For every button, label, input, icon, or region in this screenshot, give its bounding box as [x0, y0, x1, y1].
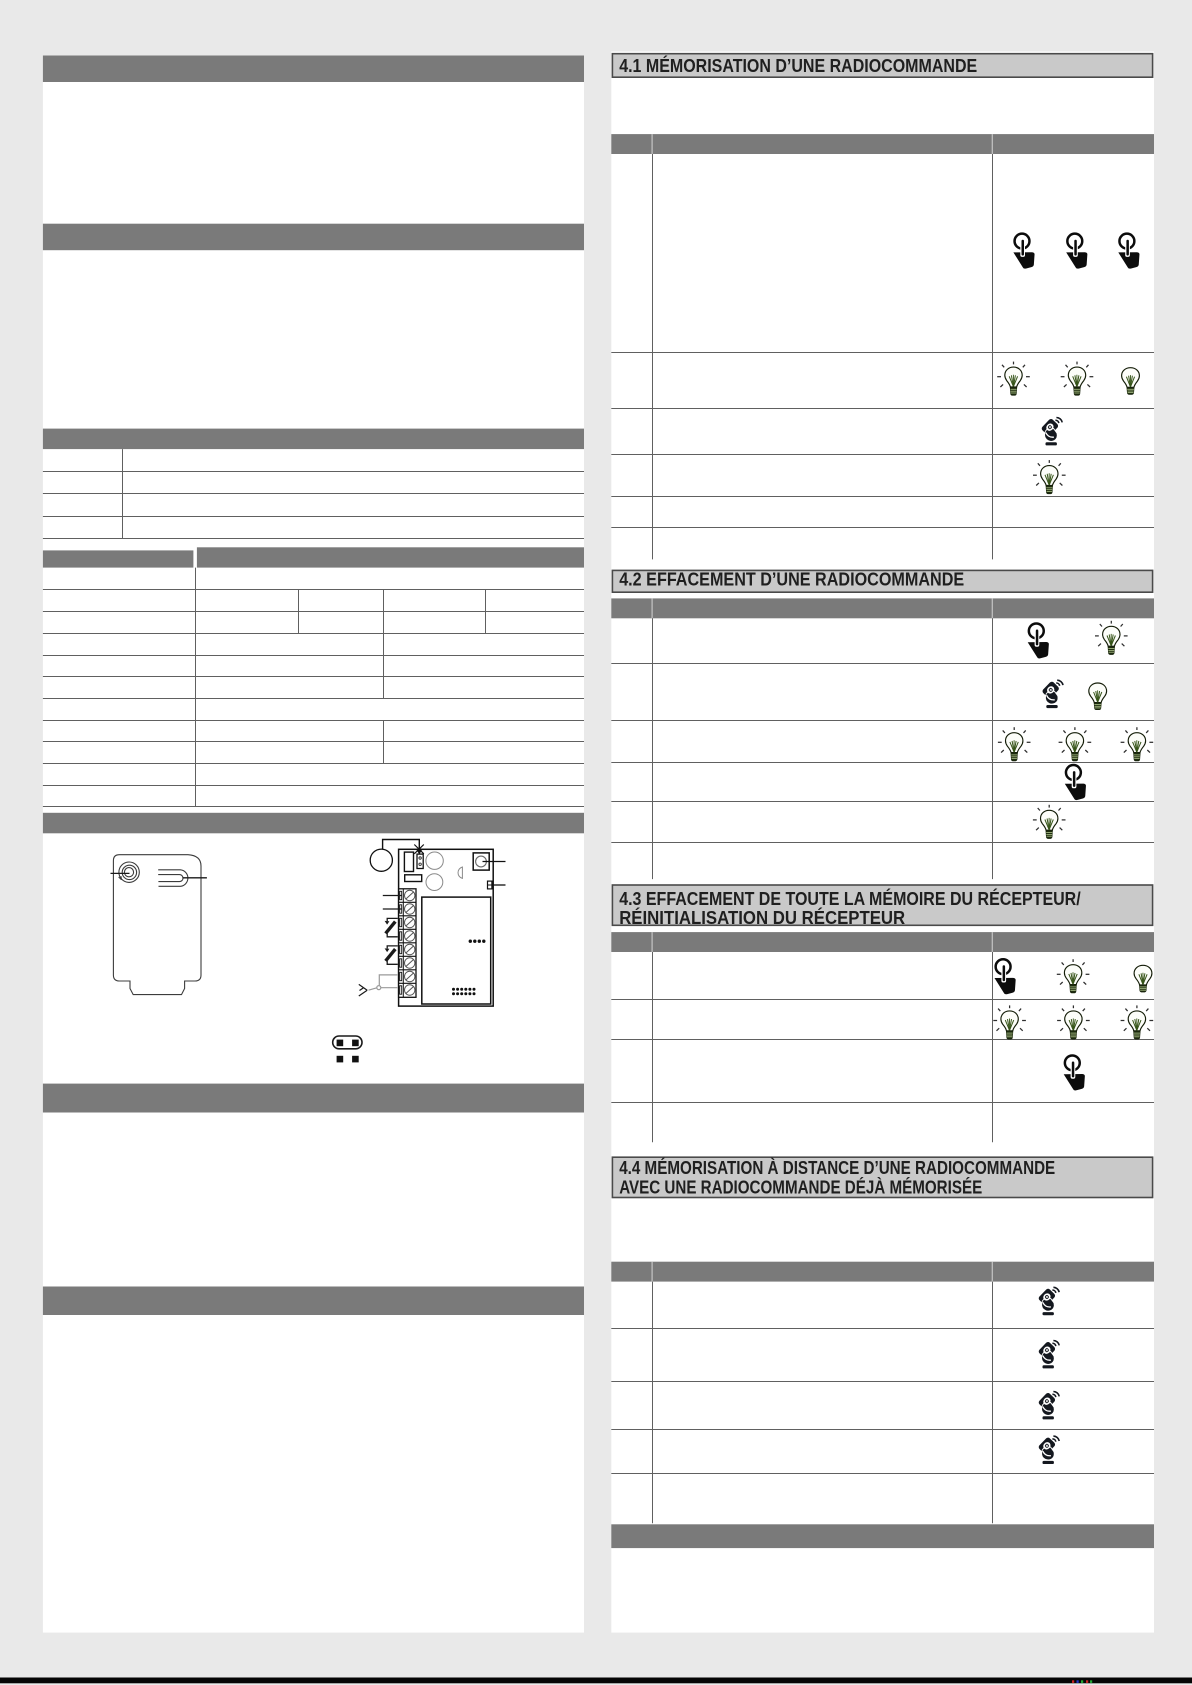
svg-text:4.4 MÉMORISATION À DISTANCE D’: 4.4 MÉMORISATION À DISTANCE D’UNE RADIOC…	[619, 1157, 1055, 1178]
svg-text:AVEC UNE RADIOCOMMANDE DÉJÀ MÉ: AVEC UNE RADIOCOMMANDE DÉJÀ MÉMORISÉE	[619, 1177, 982, 1198]
svg-text:RÉINITIALISATION DU RÉCEPTEUR: RÉINITIALISATION DU RÉCEPTEUR	[619, 907, 905, 928]
svg-text:4.1 MÉMORISATION D’UNE RADIOCO: 4.1 MÉMORISATION D’UNE RADIOCOMMANDE	[619, 55, 977, 76]
svg-text:4.3 EFFACEMENT DE TOUTE LA MÉM: 4.3 EFFACEMENT DE TOUTE LA MÉMOIRE DU RÉ…	[619, 888, 1080, 909]
svg-text:4.2 EFFACEMENT D’UNE RADIOCOMM: 4.2 EFFACEMENT D’UNE RADIOCOMMANDE	[619, 569, 964, 589]
